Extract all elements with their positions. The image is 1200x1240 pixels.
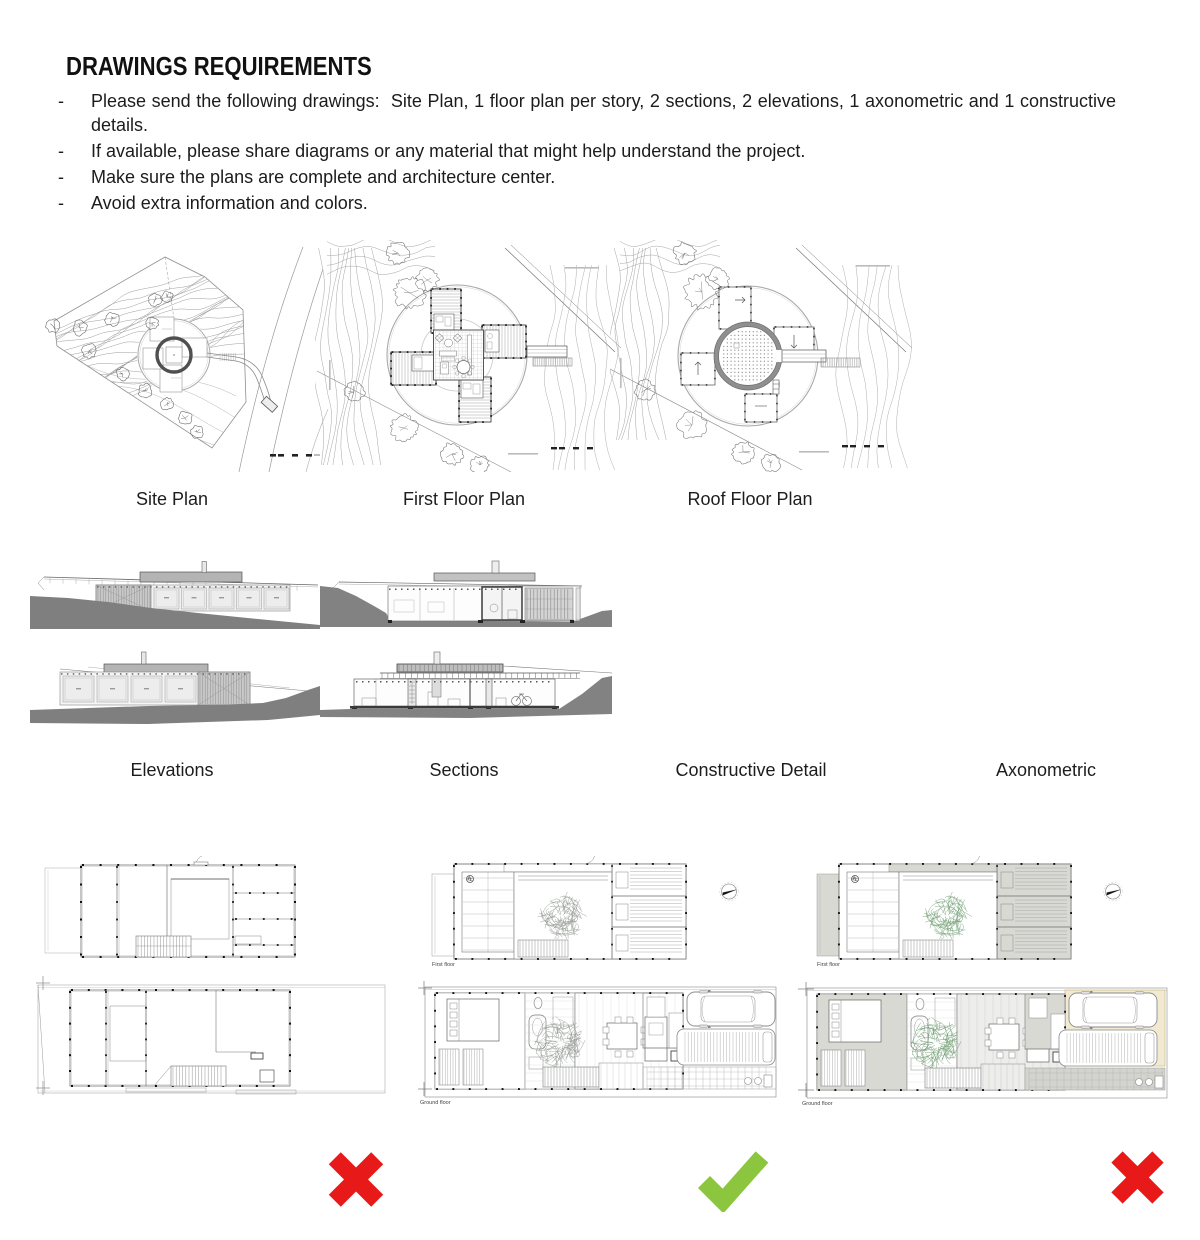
svg-text:Ground floor: Ground floor [420, 1100, 451, 1106]
svg-text:First floor: First floor [432, 962, 455, 968]
svg-text:Ground floor: Ground floor [802, 1101, 833, 1107]
svg-text:First floor: First floor [817, 962, 840, 968]
